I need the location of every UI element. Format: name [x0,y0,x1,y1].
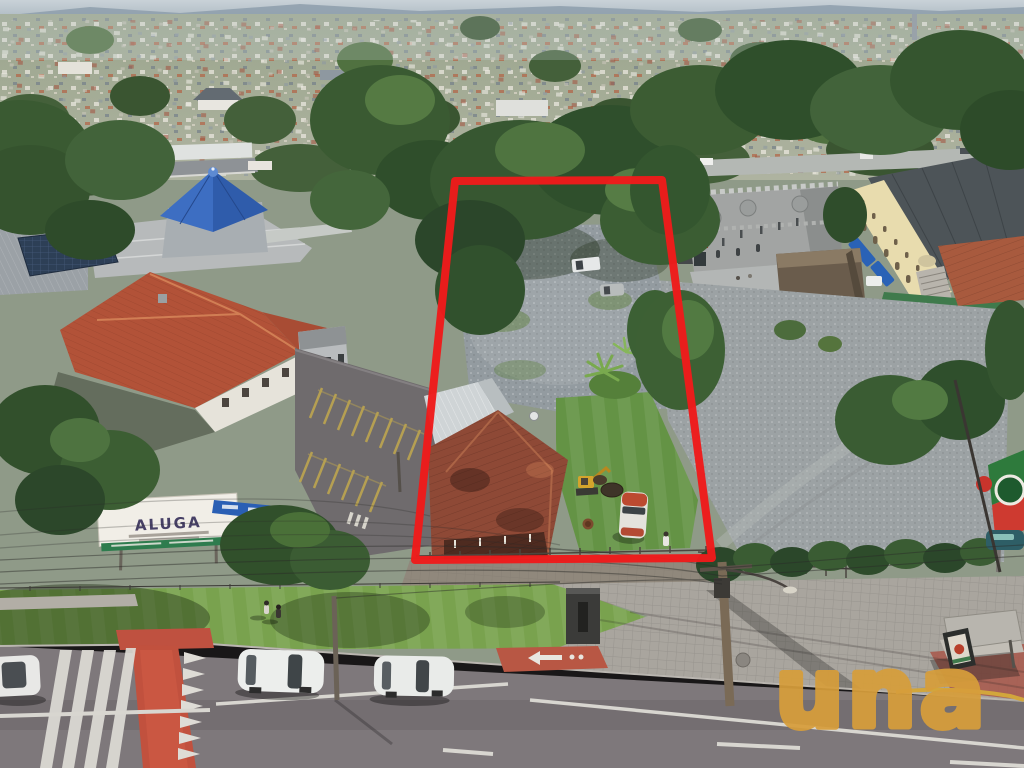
sign-emblem [996,476,1024,504]
white-car-1 [235,648,325,701]
chimney [530,412,539,421]
transformer [714,578,730,598]
pedestrian [276,605,281,619]
shrubs [589,371,641,399]
lamp-head [783,587,797,594]
light-pole [398,452,400,492]
blue-pyramid-roof-building [160,167,268,258]
haze [0,14,1024,60]
barrels [601,483,623,497]
white-car-2 [369,655,454,706]
white-van [866,276,882,286]
una-watermark-logo: una [775,637,988,749]
person-in-yard [663,532,669,547]
car-left-edge [0,655,46,706]
distant-bus [248,161,272,170]
pedestrian [264,601,269,615]
utility-pole [334,596,337,700]
aerial-photo: ALUGA [0,0,1024,768]
oculus-window [918,255,936,267]
parked-car [600,283,625,297]
chimney [158,294,167,303]
manhole [736,653,750,667]
